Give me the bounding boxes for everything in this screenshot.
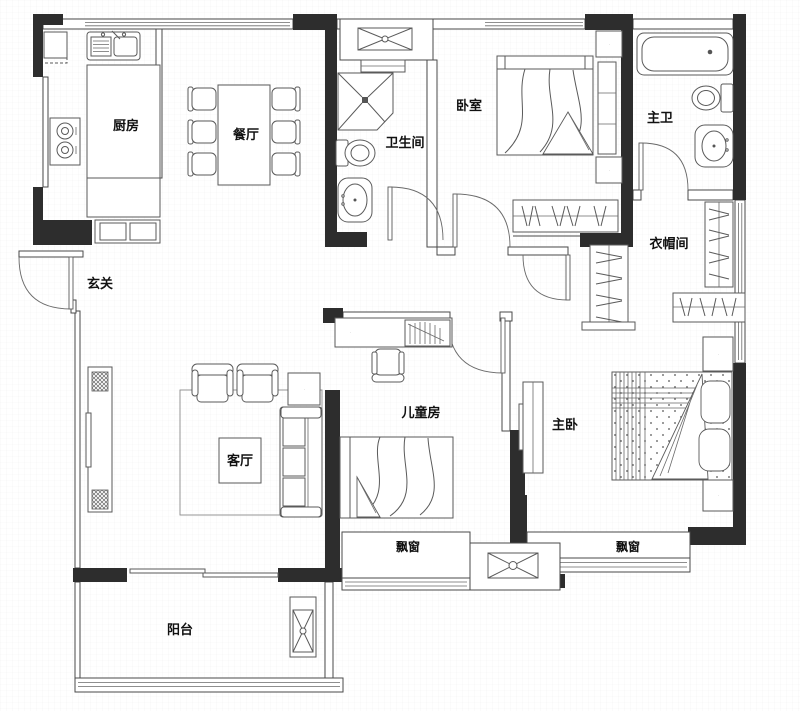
wardrobe-icon [705, 202, 733, 287]
wardrobe-icon [673, 293, 745, 322]
side-table-lamp-icon [288, 373, 320, 405]
tv-cabinet-icon [519, 382, 543, 473]
double-bed-icon [497, 56, 616, 155]
living-label: 客厅 [227, 453, 253, 468]
tv-icon [86, 413, 91, 467]
tv-cabinet-icon [86, 367, 112, 512]
ac-unit-icon [488, 553, 538, 578]
kids-room-label: 儿童房 [400, 405, 440, 420]
gas-stove-icon [50, 118, 80, 165]
kitchen-drawers-icon [95, 220, 160, 243]
dining-label: 餐厅 [232, 127, 259, 142]
closet-label: 衣帽间 [649, 236, 688, 251]
wardrobe-icon [582, 245, 635, 330]
fridge-icon [44, 32, 67, 63]
bay-window-left-label: 飘窗 [396, 539, 420, 554]
master-bedroom-label: 主卧 [552, 417, 578, 432]
dining-area: 餐厅 [188, 85, 300, 185]
shower-icon [338, 73, 393, 130]
armchair-icon [237, 364, 278, 402]
ac-platform [470, 543, 560, 590]
bathtub-icon [637, 33, 733, 75]
floor-plan-canvas: 厨房 餐厅 [0, 0, 800, 711]
ac-unit-icon [290, 597, 316, 657]
entry-label: 玄关 [87, 276, 113, 291]
kitchen-sink-icon [87, 31, 140, 60]
desk-icon [335, 318, 452, 347]
bookshelf-icon [405, 320, 450, 346]
bathroom-label: 卫生间 [385, 135, 424, 150]
entry-area: 玄关 [87, 276, 113, 291]
speaker-icon [92, 490, 108, 509]
balcony-label: 阳台 [167, 622, 193, 637]
double-bed-icon [612, 372, 732, 480]
desk-chair-icon [372, 349, 404, 382]
kitchen-island-icon [87, 65, 160, 217]
kitchen-label: 厨房 [113, 118, 139, 133]
armchair-icon [192, 364, 233, 402]
master-bath-label: 主卫 [647, 110, 673, 125]
wardrobe-icon [513, 200, 618, 232]
toilet-icon [692, 84, 733, 112]
washbasin-icon [695, 125, 733, 167]
sofa-icon [280, 407, 322, 517]
floor-plan: 厨房 餐厅 [0, 0, 800, 711]
toilet-icon [336, 140, 375, 166]
single-bed-icon [340, 437, 453, 518]
speaker-icon [92, 372, 108, 391]
bedroom-label: 卧室 [456, 98, 482, 113]
washbasin-icon [338, 178, 372, 222]
bay-window-right-label: 飘窗 [616, 539, 640, 554]
